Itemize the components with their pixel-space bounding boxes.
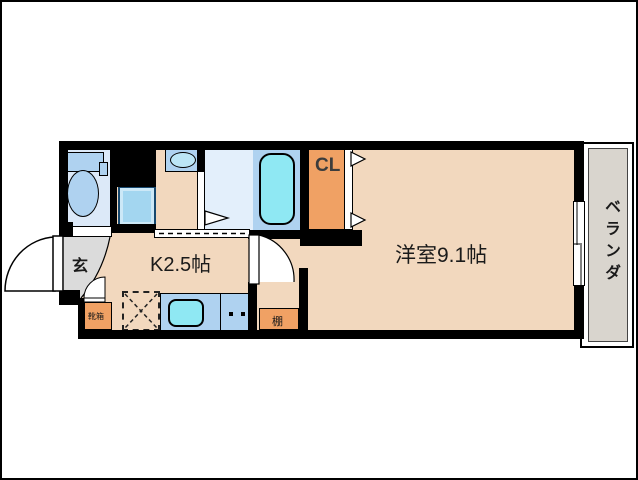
kitchen-label: K2.5帖 bbox=[150, 248, 211, 277]
shoe-box-label: 靴箱 bbox=[88, 311, 104, 322]
entrance-label: 玄 bbox=[72, 252, 88, 276]
closet-triangle-top bbox=[351, 152, 365, 166]
shelf-label: 棚 bbox=[272, 313, 283, 329]
entrance-door-arc bbox=[5, 237, 55, 291]
western-room-label: 洋室9.1帖 bbox=[395, 239, 487, 269]
floor-plan: K2.5帖 洋室9.1帖 玄 CL ベランダ 棚 靴箱 bbox=[0, 0, 638, 480]
closet-triangle-bottom bbox=[351, 213, 365, 227]
bathroom-door-triangle bbox=[205, 211, 228, 225]
plan-symbols bbox=[2, 2, 638, 480]
closet-label: CL bbox=[315, 155, 337, 177]
genkan-small-arc bbox=[84, 277, 105, 298]
room-door-leaf bbox=[249, 235, 259, 284]
veranda-label: ベランダ bbox=[598, 198, 622, 286]
entrance-door-leaf bbox=[53, 236, 63, 291]
